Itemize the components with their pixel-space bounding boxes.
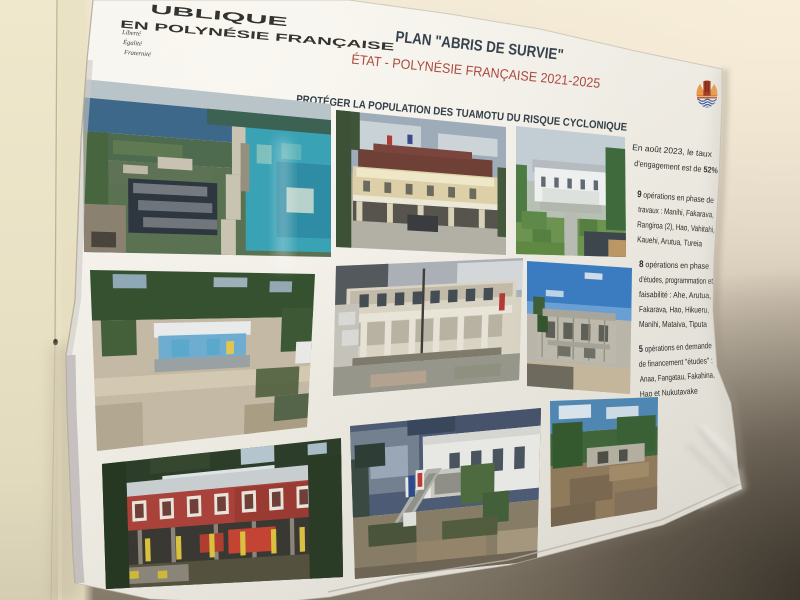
- svg-text:Fakarava, Hao, Hikueru,: Fakarava, Hao, Hikueru,: [639, 304, 709, 315]
- svg-text:Manihi, Mataiva, Tiputa: Manihi, Mataiva, Tiputa: [639, 319, 707, 329]
- svg-text:faisabilité : Ahe, Arutua,: faisabilité : Ahe, Arutua,: [639, 289, 711, 300]
- svg-text:d'études, programmation et: d'études, programmation et: [639, 274, 714, 286]
